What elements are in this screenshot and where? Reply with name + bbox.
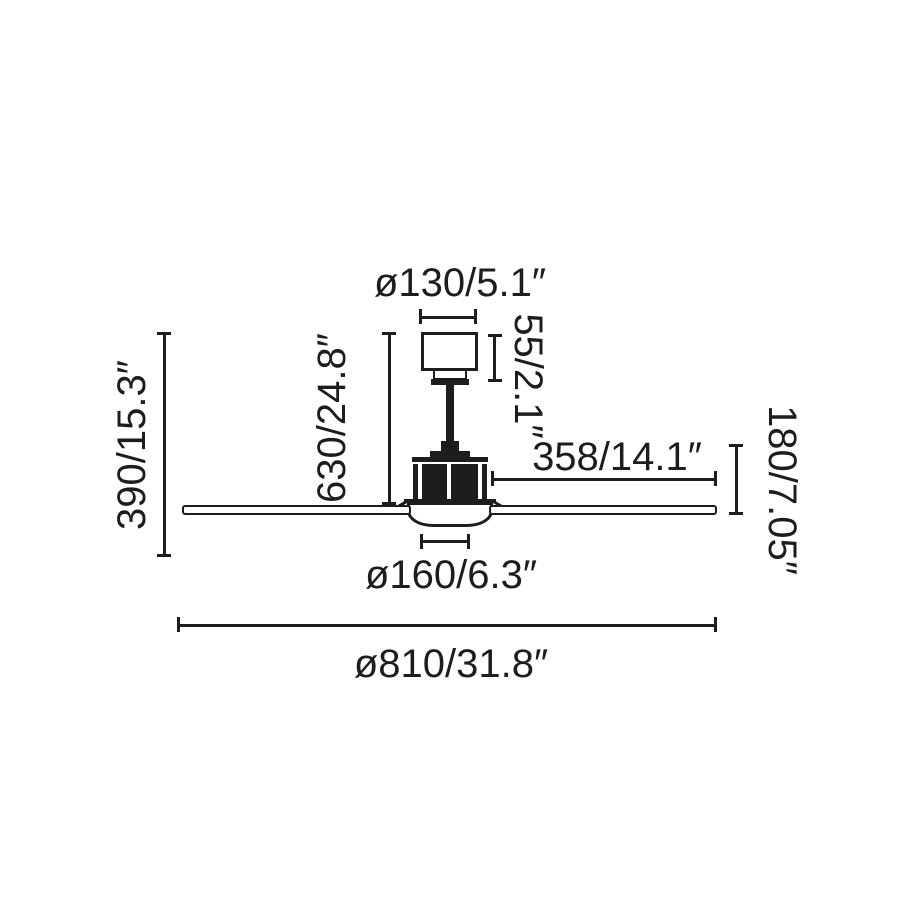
dimension-tick bbox=[419, 309, 422, 324]
dimension-label-light-diameter: ø160/6.3″ bbox=[331, 553, 571, 597]
dimension-line bbox=[421, 540, 470, 543]
dimension-tick bbox=[467, 534, 470, 549]
dimension-tick bbox=[714, 617, 717, 632]
motor-top-cap bbox=[412, 457, 488, 462]
dimension-line bbox=[178, 624, 717, 627]
dimension-line bbox=[735, 445, 738, 515]
dimension-tick bbox=[729, 444, 743, 447]
dimension-label-suspension-height: 630/24.8″ bbox=[310, 268, 354, 568]
dimension-label-canopy-height: 55/2.1″ bbox=[506, 226, 550, 526]
dimension-label-fan-diameter: ø810/31.8″ bbox=[311, 642, 591, 686]
dimension-tick bbox=[474, 309, 477, 324]
dimension-tick bbox=[157, 554, 171, 557]
dimension-tick bbox=[729, 512, 743, 515]
dimension-tick bbox=[488, 379, 502, 382]
motor-housing-slot bbox=[478, 464, 482, 499]
dimension-tick bbox=[157, 332, 171, 335]
dimension-tick bbox=[491, 471, 494, 486]
dimension-label-blade-length: 358/14.1″ bbox=[497, 435, 737, 479]
dimension-tick bbox=[382, 332, 396, 335]
ceiling-canopy bbox=[421, 332, 478, 371]
dimension-line bbox=[388, 333, 391, 505]
dimension-tick bbox=[382, 502, 396, 505]
dimension-line bbox=[493, 335, 496, 382]
dimension-tick bbox=[488, 334, 502, 337]
motor-housing-slot bbox=[447, 464, 451, 499]
motor-housing-slot bbox=[418, 464, 422, 499]
dimension-tick bbox=[177, 617, 180, 632]
fan-dimension-diagram: ø130/5.1″ 55/2.1″ 630/24.8″ 390/15.3″ 35… bbox=[0, 0, 901, 901]
light-diffuser bbox=[407, 502, 493, 527]
dimension-label-body-height: 180/7.05″ bbox=[760, 340, 804, 640]
motor-housing bbox=[413, 464, 487, 499]
dimension-tick bbox=[420, 534, 423, 549]
dimension-line bbox=[163, 333, 166, 557]
dimension-label-total-height: 390/15.3″ bbox=[110, 295, 154, 595]
dimension-line bbox=[420, 316, 477, 319]
fan-blade-left bbox=[182, 505, 411, 515]
downrod bbox=[446, 383, 454, 443]
